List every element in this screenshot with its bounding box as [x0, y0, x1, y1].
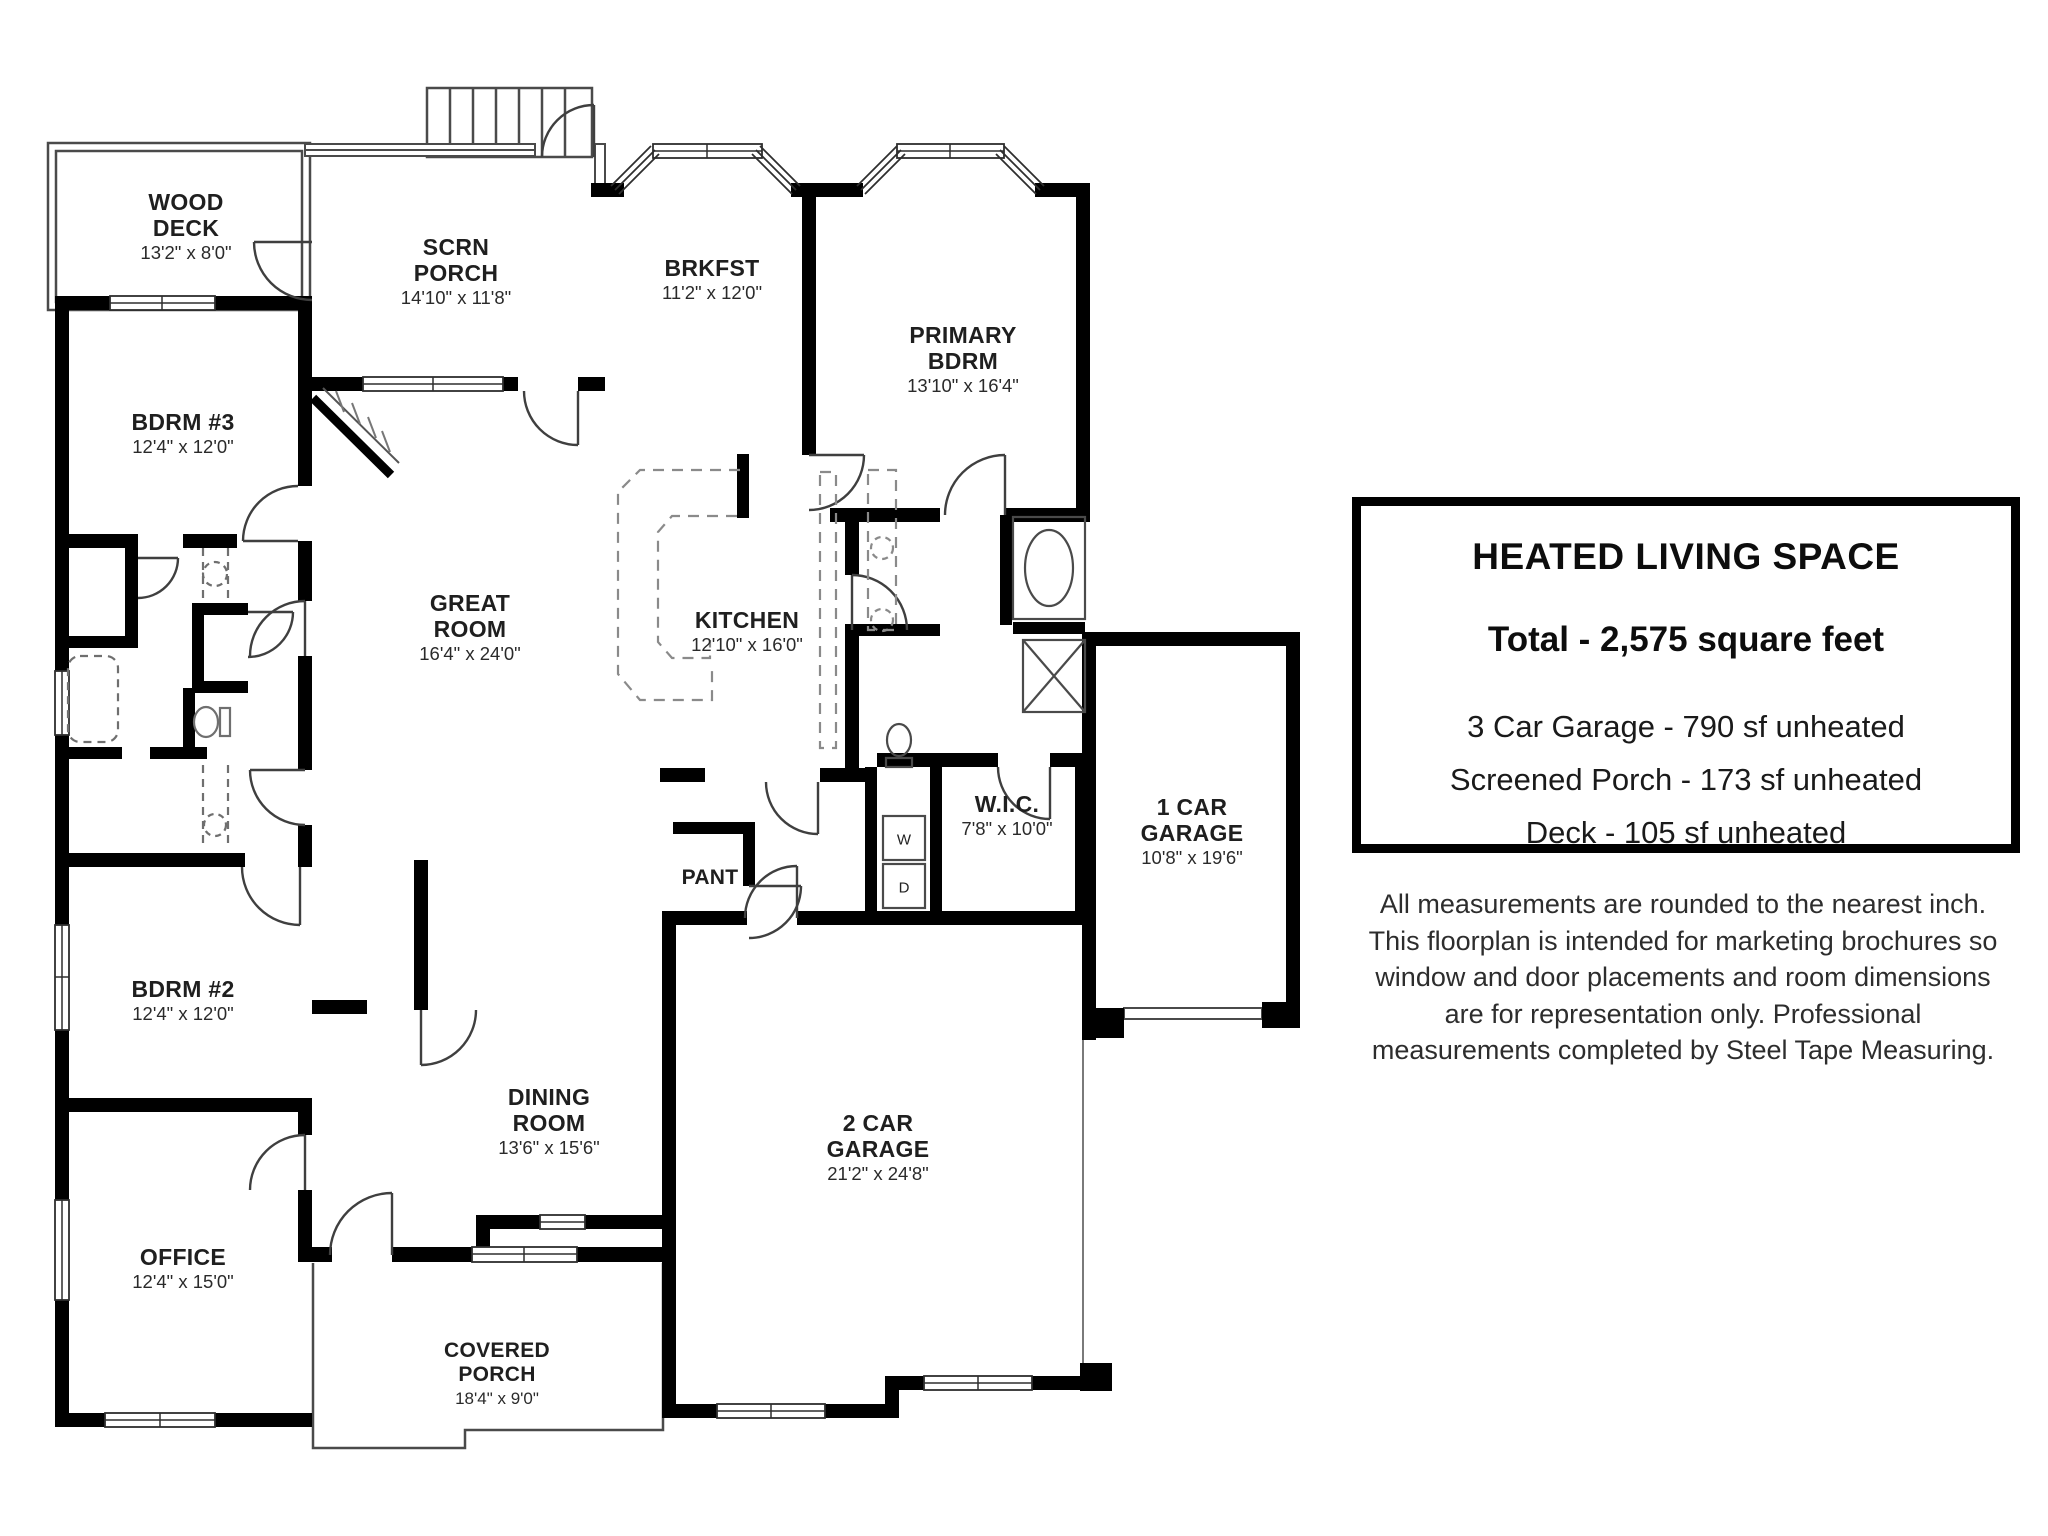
hall-bath-fixtures [68, 548, 230, 845]
room-label-wood-deck: WOOD DECK 13'2" x 8'0" [140, 189, 231, 265]
toilet [887, 724, 911, 756]
walls [55, 183, 1300, 1427]
info-item-garage: 3 Car Garage - 790 sf unheated [1361, 700, 2011, 753]
info-item-deck: Deck - 105 sf unheated [1361, 806, 2011, 859]
info-total: Total - 2,575 square feet [1361, 620, 2011, 660]
room-label-scrn-porch: SCRN PORCH 14'10" x 11'8" [401, 234, 511, 310]
room-label-1-car-garage: 1 CAR GARAGE 10'8" x 19'6" [1141, 794, 1244, 870]
washer-label: W [897, 832, 911, 849]
door-swings [138, 105, 1050, 1255]
windows [55, 144, 1032, 1427]
info-title: HEATED LIVING SPACE [1361, 536, 2011, 578]
room-label-primary-bdrm: PRIMARY BDRM 13'10" x 16'4" [907, 322, 1019, 398]
primary-bath-fixtures [886, 517, 1085, 767]
room-label-great-room: GREAT ROOM 16'4" x 24'0" [419, 590, 520, 666]
garage-door-1car [1124, 1008, 1262, 1019]
room-label-covered-porch: COVERED PORCH 18'4" x 9'0" [444, 1339, 550, 1411]
room-label-dining: DINING ROOM 13'6" x 15'6" [498, 1084, 599, 1160]
room-label-bdrm2: BDRM #2 12'4" x 12'0" [131, 976, 234, 1026]
room-label-brkfst: BRKFST 11'2" x 12'0" [662, 255, 762, 305]
floorplan-page: WOOD DECK 13'2" x 8'0" SCRN PORCH 14'10"… [0, 0, 2048, 1536]
room-label-office: OFFICE 12'4" x 15'0" [132, 1244, 233, 1294]
dryer-label: D [899, 880, 910, 897]
room-label-kitchen: KITCHEN 12'10" x 16'0" [691, 607, 803, 657]
fireplace [313, 388, 399, 475]
heated-living-space-box: HEATED LIVING SPACE Total - 2,575 square… [1352, 497, 2020, 853]
room-label-2-car-garage: 2 CAR GARAGE 21'2" x 24'8" [827, 1110, 930, 1186]
tub [1013, 517, 1085, 619]
room-label-bdrm3: BDRM #3 12'4" x 12'0" [131, 409, 234, 459]
info-item-porch: Screened Porch - 173 sf unheated [1361, 753, 2011, 806]
disclaimer-text: All measurements are rounded to the near… [1330, 886, 2036, 1069]
screen-porch-wall [305, 144, 605, 186]
room-label-wic: W.I.C. 7'8" x 10'0" [961, 791, 1052, 841]
room-label-pantry: PANT [682, 865, 739, 891]
